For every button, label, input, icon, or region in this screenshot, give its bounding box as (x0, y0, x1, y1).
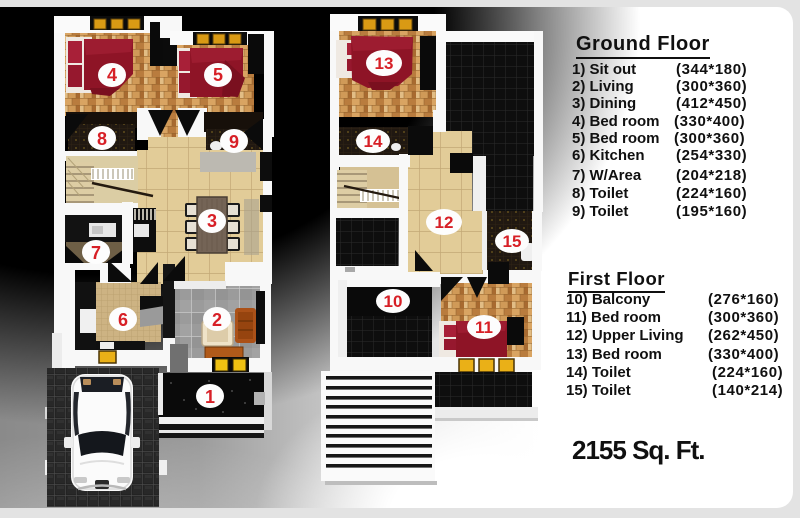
svg-text:13: 13 (375, 54, 394, 73)
svg-text:2: 2 (212, 310, 222, 330)
svg-text:15: 15 (503, 232, 522, 251)
svg-text:11: 11 (475, 318, 493, 337)
svg-text:14: 14 (364, 132, 383, 151)
svg-text:9: 9 (229, 132, 239, 152)
svg-text:10: 10 (384, 292, 403, 311)
svg-text:4: 4 (107, 65, 117, 85)
svg-text:1: 1 (205, 387, 215, 407)
svg-text:12: 12 (435, 213, 454, 232)
svg-text:8: 8 (97, 129, 107, 149)
svg-text:6: 6 (118, 310, 128, 330)
svg-text:7: 7 (91, 243, 101, 263)
svg-text:5: 5 (213, 65, 223, 85)
svg-text:3: 3 (207, 211, 217, 231)
